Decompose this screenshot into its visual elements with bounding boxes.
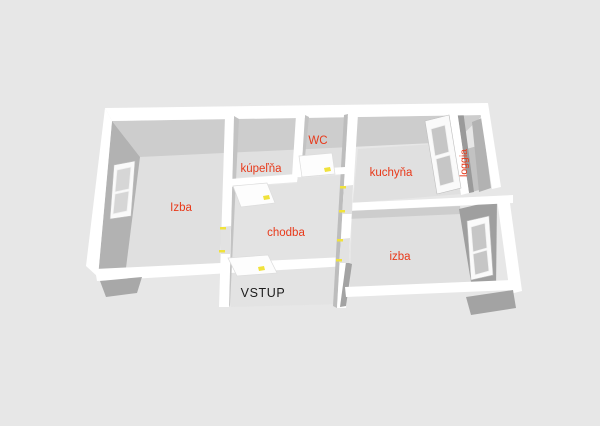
door-leaf-kupelna [233,183,275,207]
door-swing-marker [339,210,345,213]
door-swing-marker [336,259,342,262]
window-left [110,161,135,219]
window-pane [471,223,487,252]
window-pane [113,191,129,214]
label-vstup: VSTUP [241,286,286,300]
door-leaf-entrance [228,255,277,276]
door-leaf-wc [299,153,335,177]
label-kupelna: kúpeľňa [240,163,282,175]
floor-izba-right [350,209,471,287]
label-wc: WC [308,135,327,147]
door-swing-marker [337,239,343,242]
door-swing-marker [219,250,225,253]
label-izba-right: izba [389,251,411,263]
label-izba-left: Izba [170,202,192,214]
door-swing-marker [220,227,226,230]
label-chodba: chodba [267,227,305,239]
floorplan-canvas: Izba kúpeľňa WC kuchyňa chodba izba logg… [0,0,600,426]
label-loggia: loggia [458,149,470,177]
window-pane [473,250,489,275]
door-swing-marker [340,186,346,189]
doorway-izba-left [221,226,231,254]
window-izba-right [467,216,493,280]
label-kuchyna: kuchyňa [370,167,413,179]
window-pane [115,167,131,192]
